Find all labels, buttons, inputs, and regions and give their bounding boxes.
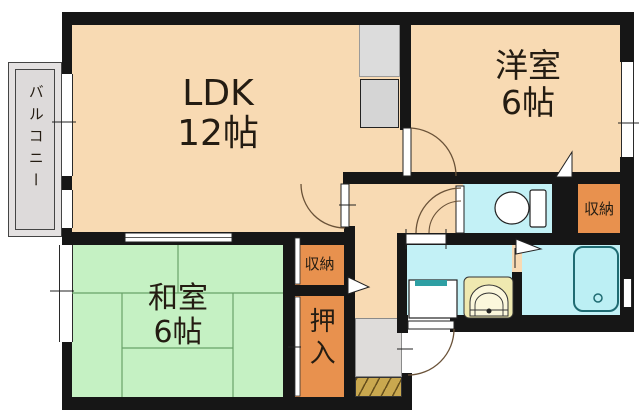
- label-japanese-room: 和室 6帖: [88, 282, 268, 349]
- japanese-room-size: 6帖: [88, 316, 268, 350]
- washbasin-icon: [464, 277, 513, 318]
- label-oshiire: 押入: [305, 307, 334, 371]
- label-western-room: 洋室 6帖: [438, 48, 618, 122]
- western-room-name: 洋室: [438, 48, 618, 85]
- label-ldk: LDK 12帖: [128, 74, 308, 155]
- door-ldk: [301, 184, 349, 228]
- floor-plan: LDK 12帖 洋室 6帖 和室 6帖 収納 収納 押入 バルコニー: [0, 0, 640, 414]
- door-washroom: [406, 229, 446, 249]
- washing-machine-pan-icon: [409, 280, 457, 318]
- western-storage-door-marker: [556, 152, 572, 177]
- ldk-size: 12帖: [128, 114, 308, 154]
- label-balcony: バルコニー: [27, 84, 44, 194]
- bathtub-icon: [574, 247, 618, 311]
- door-entrance: [408, 321, 454, 375]
- japanese-room-name: 和室: [88, 282, 268, 316]
- door-western-room: [403, 128, 456, 176]
- bath-door-marker: [516, 239, 541, 254]
- door-toilet: [416, 186, 464, 233]
- western-room-size: 6帖: [438, 85, 618, 122]
- label-storage-west: 収納: [578, 201, 620, 218]
- sliding-door-ldk-japanese: [125, 233, 232, 242]
- ldk-name: LDK: [128, 74, 308, 114]
- toilet-icon: [495, 190, 546, 227]
- hall-storage-door-marker: [348, 277, 369, 294]
- label-storage-hall: 収納: [295, 256, 344, 273]
